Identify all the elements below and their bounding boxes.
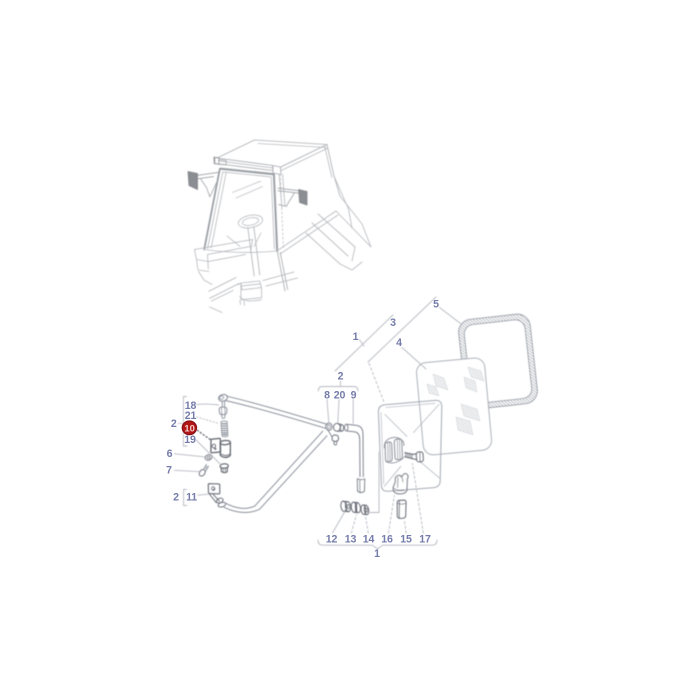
svg-text:14: 14	[363, 534, 375, 546]
svg-text:2: 2	[173, 492, 179, 504]
svg-text:21: 21	[185, 410, 197, 422]
svg-text:20: 20	[334, 390, 346, 402]
svg-text:8: 8	[324, 390, 330, 402]
svg-text:16: 16	[381, 534, 393, 546]
svg-text:19: 19	[184, 434, 196, 446]
svg-text:3: 3	[390, 317, 396, 329]
svg-text:13: 13	[345, 534, 357, 546]
svg-text:2: 2	[171, 418, 177, 430]
svg-text:1: 1	[353, 331, 359, 343]
svg-text:4: 4	[396, 337, 402, 349]
svg-text:1: 1	[374, 548, 380, 560]
svg-text:17: 17	[419, 534, 431, 546]
svg-text:15: 15	[400, 534, 412, 546]
svg-text:11: 11	[186, 492, 197, 504]
svg-text:10: 10	[184, 422, 194, 433]
svg-text:9: 9	[351, 390, 357, 402]
svg-text:7: 7	[166, 465, 172, 477]
svg-text:6: 6	[167, 448, 173, 460]
svg-text:5: 5	[433, 299, 439, 311]
svg-text:12: 12	[326, 534, 338, 546]
svg-text:2: 2	[338, 371, 344, 383]
